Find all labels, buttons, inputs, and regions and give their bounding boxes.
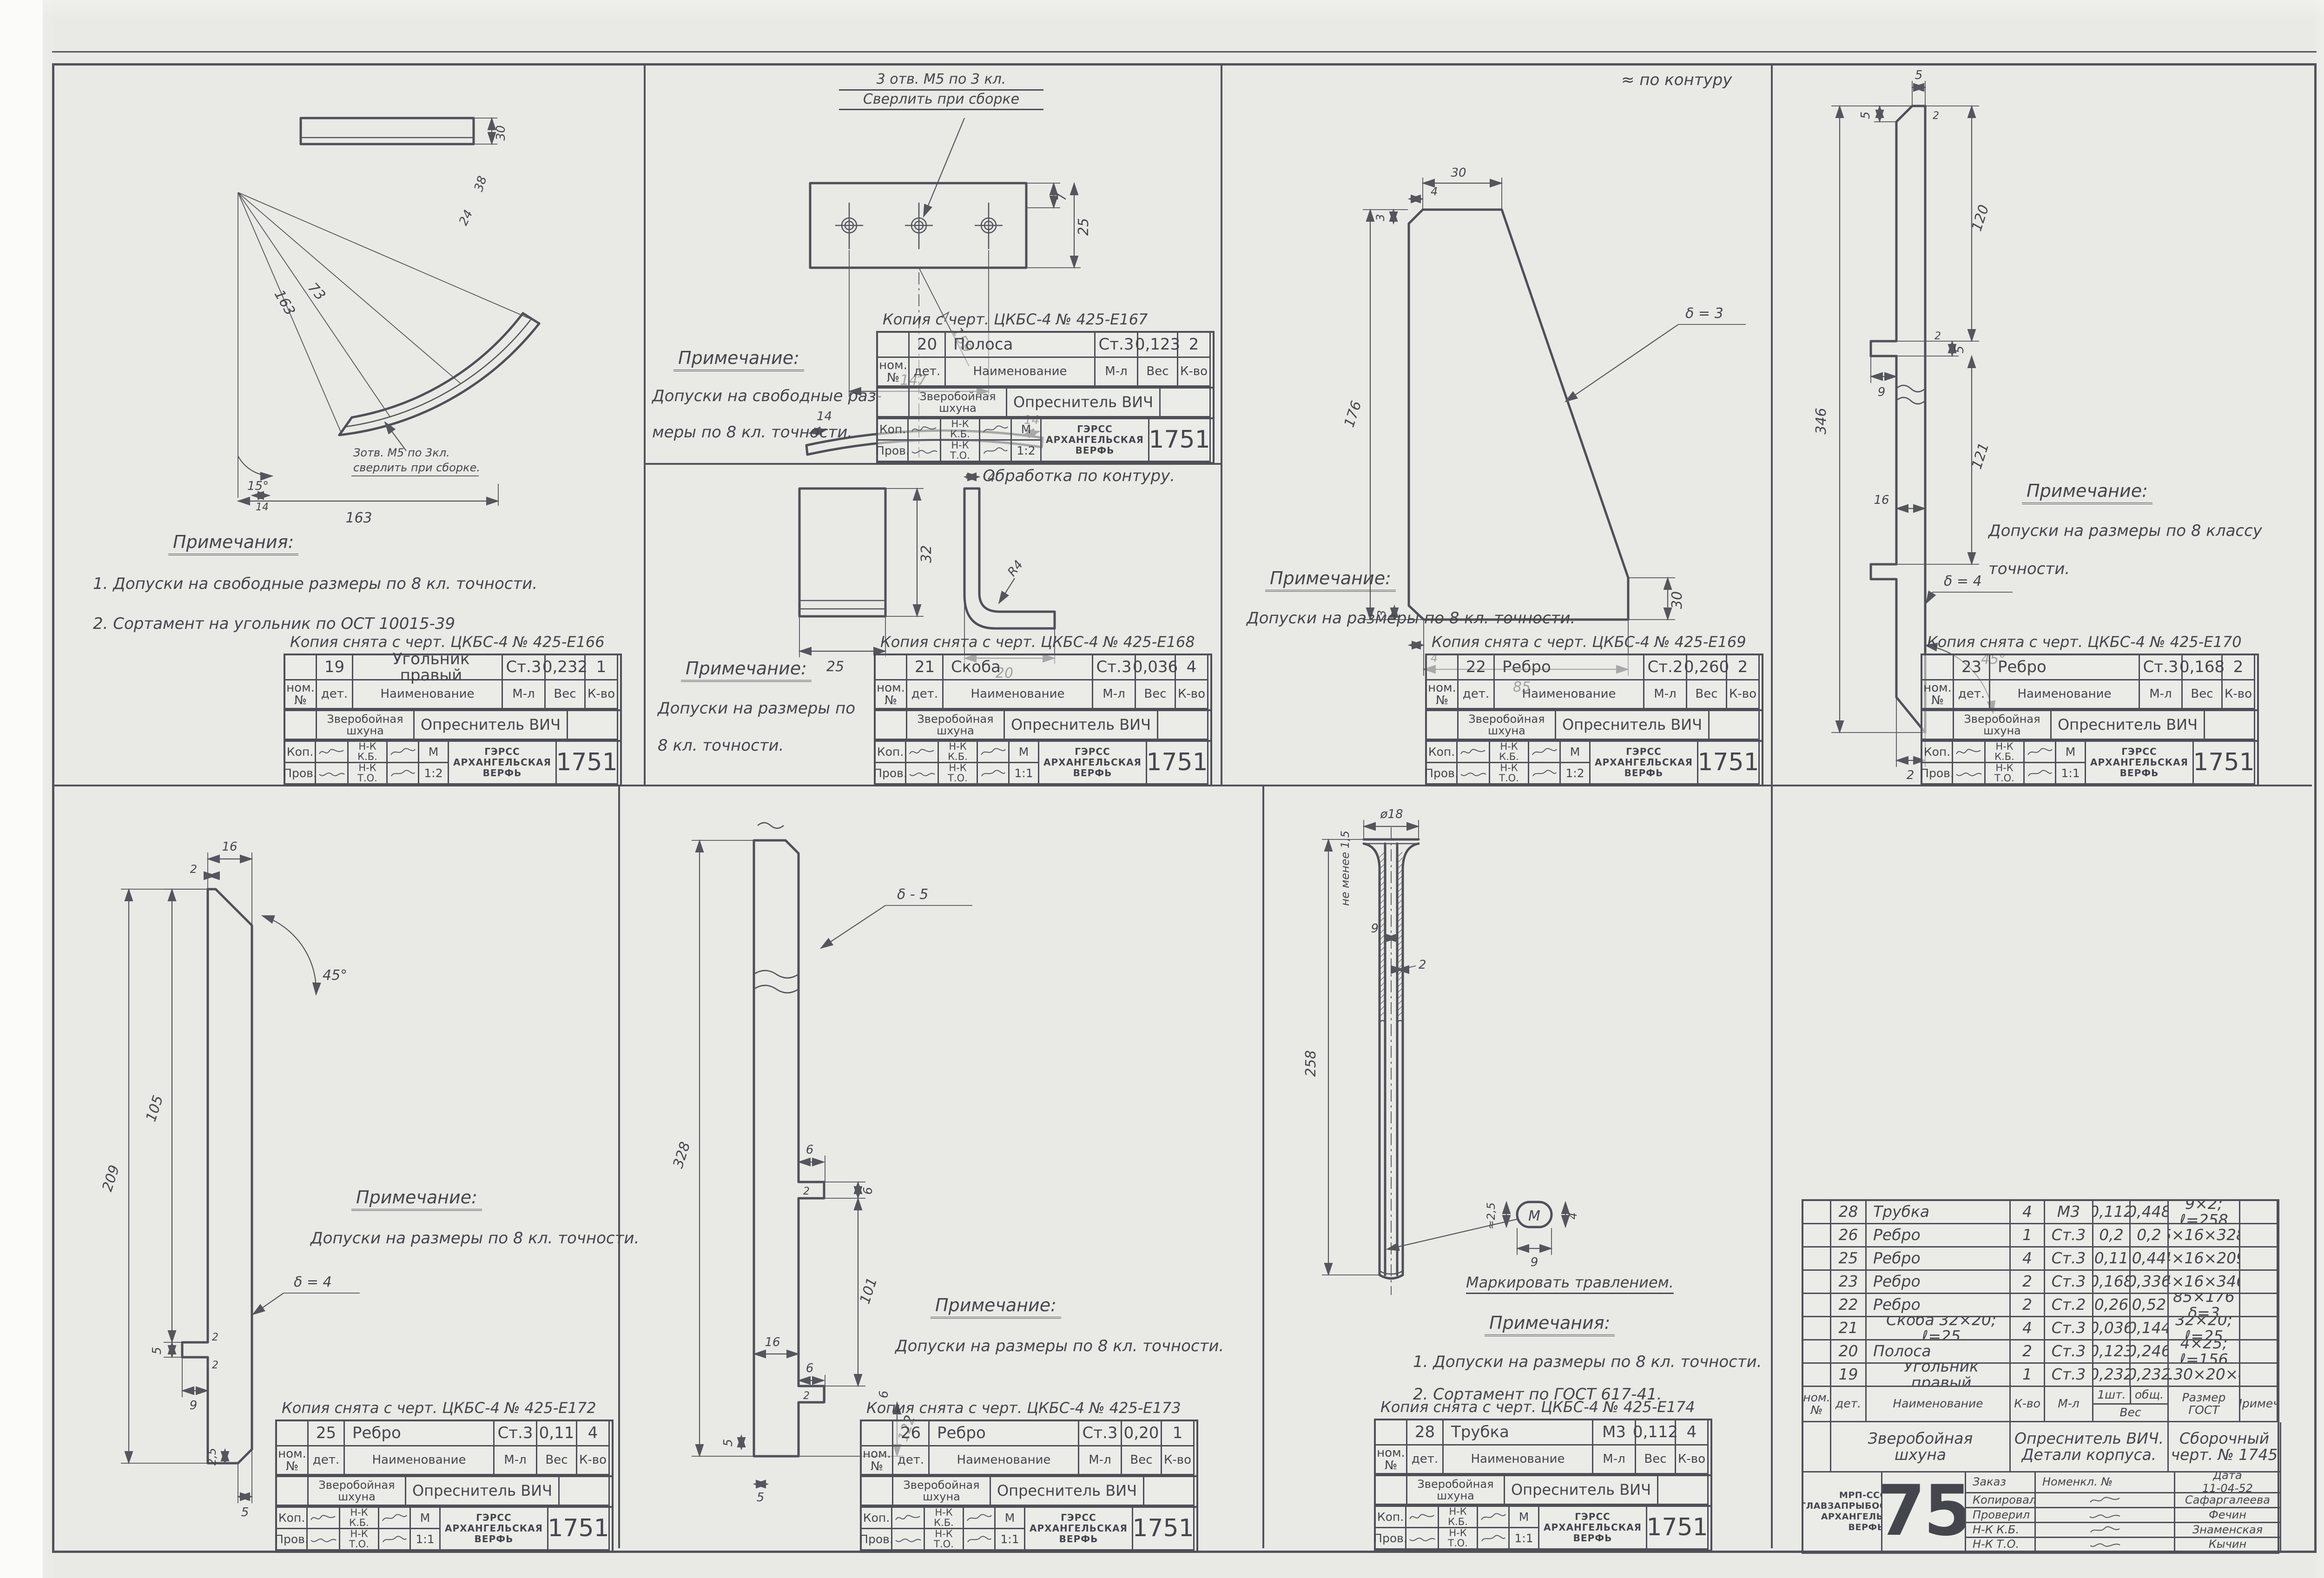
signature-scribble: [964, 1508, 996, 1529]
dim-label: 45°: [323, 967, 347, 984]
signature-scribble: [1953, 763, 1986, 785]
copy-line: Копия снята с черт. ЦКБС-4 № 425-Е173: [860, 1399, 1198, 1420]
panel-part-25: 16 2 45° 105 209 5 2 2 9 δ = 4 2,5: [52, 785, 618, 1551]
title-block-23: Копия снята с черт. ЦКБС-4 № 425-Е170 23…: [1921, 633, 2259, 786]
dim-label: 2: [212, 1360, 218, 1371]
signature-scribble: [978, 763, 1010, 785]
note-line: меры по 8 кл. точности.: [652, 423, 852, 442]
note-line: 1. Допуски на свободные размеры по 8 кл.…: [93, 574, 537, 593]
copy-line: Копия снята с черт. ЦКБС-4 № 425-Е168: [874, 633, 1212, 654]
dim-label: 176: [1341, 399, 1365, 429]
signature-scribble: [2036, 1538, 2175, 1552]
scale-value: 1:2: [1561, 763, 1591, 785]
note-title: Примечание:: [681, 658, 812, 682]
project-name: Зверобойная шхуна: [1831, 1422, 2011, 1472]
part-number: 19: [317, 655, 353, 680]
min-note: не менее 1,5: [1339, 831, 1352, 906]
part-qty: 1: [586, 655, 618, 680]
dim-label: 30: [1451, 166, 1466, 180]
dim-label: 5: [757, 1491, 765, 1505]
dim-label: 16: [765, 1335, 780, 1349]
scale-value: 1:1: [2056, 763, 2086, 785]
note-title: Примечание:: [1265, 568, 1396, 592]
dim-label: 2: [1933, 110, 1939, 122]
dim-label: 32: [918, 545, 935, 563]
panel-part-22: ≈ по контуру 30 4 3 176 δ = 3 30 85 4: [1221, 63, 1771, 785]
signature-scribble: [1458, 763, 1490, 785]
note-line: Допуски на размеры по 8 кл. точности.: [310, 1229, 639, 1248]
dim-label: 4: [988, 471, 996, 485]
drawing-number: 1751: [1647, 1507, 1709, 1550]
dim-label: 5: [150, 1347, 164, 1355]
signature-name: Фечин: [2175, 1508, 2281, 1523]
panel-part-19: 30 38 24 163 73 Зотв. М5 по 3кл. сверлит…: [52, 63, 644, 785]
dim-label: 24: [456, 208, 475, 228]
signature-scribble: [1953, 742, 1986, 763]
dim-label: ø18: [1380, 807, 1403, 821]
signature-scribble: [308, 1529, 340, 1551]
dim-label: 73: [304, 280, 329, 304]
dim-label: 9: [190, 1399, 198, 1413]
table-row: 20 Полоса2 Ст.30,123 0,2464×25; ℓ=156: [1802, 1340, 2279, 1364]
part-weight: 0,232: [546, 655, 586, 680]
drawing-number: 1751: [1133, 1508, 1195, 1551]
scale-value: 1:1: [1510, 1528, 1539, 1550]
title-block-19: Копия снята с черт. ЦКБС-4 № 425-Е166 19…: [284, 633, 622, 786]
signature-name: Кычин: [2175, 1538, 2281, 1552]
table-row: 22 Ребро2 Ст.20,26 0,5285×176 δ=3: [1802, 1294, 2279, 1317]
delta-label: δ - 5: [897, 886, 928, 903]
dim-label: 30: [1669, 591, 1685, 609]
dim-label: 16: [222, 840, 237, 854]
part-name: Ребро: [1990, 655, 2140, 680]
delta-label: δ = 4: [294, 1274, 332, 1290]
dim-label: 14: [256, 502, 269, 513]
panel-part-23: 5 5 2 120 346 9 5 2 121 16 δ = 4: [1771, 63, 2317, 785]
signature-scribble: [379, 1529, 411, 1551]
signature-scribble: [379, 1508, 411, 1529]
part-number: 26: [893, 1421, 930, 1446]
signature-scribble: [906, 763, 939, 785]
dim-label: 328: [670, 1140, 693, 1170]
drawing-number: 1751: [1698, 742, 1760, 785]
table-row: 26 Ребро1 Ст.30,2 0,25×16×328: [1802, 1224, 2279, 1248]
object-name: Опреснитель ВИЧ: [415, 711, 568, 740]
title-block-28: Копия снята с черт. ЦКБС-4 № 425-Е174 28…: [1374, 1398, 1712, 1552]
dim-label: 2,5: [205, 1448, 218, 1466]
dim-label: 16: [1874, 493, 1889, 507]
part-name: Угольник правый: [353, 655, 503, 680]
signature-scribble: [2036, 1508, 2175, 1523]
drill-note: 3 отв. М5 по 3 кл. Сверлить при сборке: [839, 71, 1043, 110]
dim-label: 38: [472, 174, 490, 193]
dim-label: 9: [1371, 922, 1379, 936]
signature-scribble: [316, 742, 349, 763]
drawing-number: 1751: [1149, 419, 1211, 462]
note-line: Допуски на размеры по 8 классу: [1988, 522, 2262, 540]
part-name: Ребро: [345, 1421, 495, 1446]
note-line: Допуски на размеры по 8 кл. точности.: [895, 1337, 1224, 1355]
table-row: 28 Трубка4 М30,112 0,4489×2; ℓ=258: [1802, 1199, 2279, 1224]
copy-line: Копия снята с черт. ЦКБС-4 № 425-Е169: [1425, 633, 1763, 654]
dim-label: 15°: [247, 479, 269, 493]
signature-scribble: [1406, 1507, 1439, 1528]
scale-value: 1:1: [411, 1529, 441, 1551]
dim-label: 120: [1968, 203, 1992, 233]
panel-part-26: δ - 5 6 2 6 16 101 6 2 6 122 328: [618, 785, 1262, 1551]
title-block-26: Копия снята с черт. ЦКБС-4 № 425-Е173 26…: [860, 1399, 1198, 1552]
part-number: 22: [1459, 655, 1495, 680]
note-line: 2. Сортамент на угольник по ОСТ 10015-39: [93, 614, 455, 633]
note-title: Примечание:: [2022, 481, 2152, 504]
object-name: Опреснитель ВИЧ. Детали корпуса.: [2011, 1422, 2169, 1472]
dim-label: 4: [1431, 185, 1438, 198]
dim-label: 6: [806, 1143, 814, 1157]
factory-name: ГЭРССАРХАНГЕЛЬСКАЯВЕРФЬ: [1039, 742, 1147, 785]
blueprint-sheet: 30 38 24 163 73 Зотв. М5 по 3кл. сверлит…: [0, 0, 2324, 1578]
dim-label: 121: [1968, 441, 1992, 471]
part-name: Ребро: [930, 1421, 1079, 1446]
factory-name: ГЭРССАРХАНГЕЛЬСКАЯВЕРФЬ: [2086, 742, 2194, 785]
dim-label: 5: [1915, 68, 1923, 82]
scale-value: 1:1: [1010, 763, 1039, 785]
date-cell: Дата11-04-52: [2175, 1472, 2281, 1493]
note-title: Примечания:: [168, 532, 298, 555]
table-row: 21 Скоба 32×20; ℓ=254 Ст.30,036 0,14432×…: [1802, 1317, 2279, 1340]
dim-label: 30: [494, 125, 508, 140]
scale-value: 1:2: [419, 763, 449, 785]
part-number: 28: [1407, 1420, 1444, 1446]
signature-scribble: [2036, 1523, 2175, 1538]
signature-scribble: [316, 763, 349, 785]
drawing-number: 1751: [2194, 742, 2255, 785]
signature-scribble: [892, 1529, 925, 1551]
scale-value: 1:2: [1012, 441, 1042, 462]
dim-label: 163: [345, 510, 372, 526]
title-block-21: Копия снята с черт. ЦКБС-4 № 425-Е168 21…: [874, 633, 1212, 786]
title-block-20: Копия с черт. ЦКБС-4 № 425-Е167 20 Полос…: [876, 310, 1215, 464]
signature-scribble: [964, 1529, 996, 1551]
dim-label: 2: [803, 1390, 810, 1402]
copy-line: Копия снята с черт. ЦКБС-4 № 425-Е174: [1374, 1398, 1712, 1419]
table-row: 25 Ребро4 Ст.30,11 0,444×16×209: [1802, 1248, 2279, 1271]
drawing-number: 1751: [557, 742, 618, 785]
signature-scribble: [1529, 742, 1561, 763]
shipyard-logo: ⚓ МРП-СССР ГЛАВЗАПРЫБОСУДОСТР. АРХАНГЕЛЬ…: [1803, 1472, 1882, 1552]
panel-part-28: не менее 1,5 ø18 9 2 258 М ≈2,5 4 9 Марк…: [1262, 785, 1771, 1551]
main-title-row: Зверобойная шхуна Опреснитель ВИЧ. Детал…: [1802, 1422, 2279, 1472]
note-line: Допуски на размеры по 8 кл. точности.: [1247, 609, 1575, 627]
note-title: Примечание:: [673, 348, 804, 371]
part-material: Ст.3: [503, 655, 546, 680]
dim-label: 101: [857, 1275, 880, 1306]
note-line: 8 кл. точности.: [658, 736, 784, 755]
dim-label: 2: [190, 863, 197, 876]
drawing-number: 1751: [548, 1508, 610, 1551]
signature-scribble: [388, 763, 419, 785]
note-title: Примечания:: [1485, 1313, 1615, 1336]
signature-scribble: [2025, 742, 2056, 763]
drawing-number: 1751: [1147, 742, 1208, 785]
signature-scribble: [978, 742, 1010, 763]
dim-label: 9: [1878, 385, 1886, 399]
copy-line: Копия с черт. ЦКБС-4 № 425-Е167: [876, 310, 1215, 331]
signature-scribble: [909, 441, 941, 462]
factory-name: ГЭРССАРХАНГЕЛЬСКАЯВЕРФЬ: [1591, 742, 1698, 785]
dim-label: 5: [1859, 112, 1873, 119]
part-number: 20: [910, 333, 946, 358]
hole-note-line2: сверлить при сборке.: [353, 461, 480, 474]
signature-scribble: [909, 419, 941, 441]
dim-label: 2: [1907, 768, 1915, 782]
signature-scribble: [2036, 1493, 2175, 1508]
dim-label: 2: [1934, 330, 1941, 342]
note-line: Допуски на размеры по: [658, 699, 855, 718]
part-number: 25: [309, 1421, 345, 1446]
etch-note: Маркировать травлением.: [1466, 1274, 1674, 1294]
delta-label: δ = 3: [1685, 305, 1723, 322]
assembly-drawing-ref: Сборочный черт. № 1745: [2169, 1422, 2281, 1472]
factory-name: ГЭРССАРХАНГЕЛЬСКАЯВЕРФЬ: [441, 1508, 548, 1551]
dim-label: 258: [1303, 1050, 1319, 1076]
dim-label: 14: [817, 409, 832, 423]
signature-scribble: [1478, 1507, 1510, 1528]
main-bottom-block: Заказ Номенкл. № Дата11-04-52 ⚓ МРП-СССР…: [1802, 1472, 2279, 1554]
note-line: Допуски на свободные раз-: [652, 387, 882, 405]
note-title: Примечание:: [351, 1187, 482, 1211]
signature-scribble: [906, 742, 939, 763]
signature-scribble: [980, 419, 1012, 441]
dim-label: 25: [826, 659, 844, 675]
note-line: точности.: [1988, 560, 2070, 578]
parts-list: 28 Трубка4 М30,112 0,4489×2; ℓ=258 26 Ре…: [1802, 1199, 2279, 1554]
copy-line: Копия снята с черт. ЦКБС-4 № 425-Е170: [1921, 633, 2259, 654]
signature-scribble: [1529, 763, 1561, 785]
note-line: 1. Допуски на размеры по 8 кл. точности.: [1413, 1353, 1762, 1371]
part-name: Полоса: [946, 333, 1096, 358]
dim-label: 6: [877, 1391, 891, 1399]
drawing-number-stamp: 1751: [1882, 1472, 1966, 1552]
dim-label: 5: [1953, 346, 1967, 354]
signature-scribble: [1458, 742, 1490, 763]
table-row: 23 Ребро2 Ст.30,168 0,3364×16×346: [1802, 1271, 2279, 1294]
factory-name: ГЭРССАРХАНГЕЛЬСКАЯВЕРФЬ: [449, 742, 557, 785]
scan-edge-left: [0, 0, 43, 1578]
dim-label: 163: [271, 287, 298, 318]
title-block-22: Копия снята с черт. ЦКБС-4 № 425-Е169 22…: [1425, 633, 1763, 786]
title-block-25: Копия снята с черт. ЦКБС-4 № 425-Е172 25…: [275, 1399, 614, 1552]
signature-scribble: [308, 1508, 340, 1529]
frame-top-hairline: [52, 51, 2317, 53]
dim-label: 2: [212, 1332, 218, 1343]
dim-label: 9: [1531, 1255, 1538, 1269]
part-number: 21: [907, 655, 944, 680]
dim-label: 346: [1813, 408, 1829, 434]
signature-scribble: [980, 441, 1012, 462]
signature-scribble: [892, 1508, 925, 1529]
dim-label: 209: [99, 1163, 123, 1193]
dim-label: 6: [806, 1361, 814, 1375]
signature-name: Сафаргалеева: [2175, 1493, 2281, 1508]
signature-name: Знаменская: [2175, 1523, 2281, 1538]
part-name: Ребро: [1495, 655, 1644, 680]
signature-scribble: [1478, 1528, 1510, 1550]
table-row: 19 Угольник правый1 Ст.30,232 0,232∠30×2…: [1802, 1364, 2279, 1387]
dim-label: 3: [1374, 214, 1387, 221]
part-name: Скоба: [944, 655, 1093, 680]
table-header: ном. № дет. Наименование К-во М-л 1шт.об…: [1802, 1387, 2279, 1422]
signature-scribble: [388, 742, 419, 763]
dim-label: 2: [803, 1186, 810, 1197]
mark-letter: М: [1528, 1208, 1540, 1224]
hole-note-line1: Зотв. М5 по 3кл.: [353, 446, 450, 459]
copy-line: Копия снята с черт. ЦКБС-4 № 425-Е172: [275, 1399, 614, 1420]
factory-name: ГЭРССАРХАНГЕЛЬСКАЯВЕРФЬ: [1025, 1508, 1133, 1551]
dim-label: 105: [143, 1093, 166, 1123]
factory-name: ГЭРССАРХАНГЕЛЬСКАЯВЕРФЬ: [1042, 419, 1149, 462]
panel-part-21: ≈ Обработка по контуру. 32 25 4 R4 20 Пр…: [644, 463, 1221, 785]
part-name: Трубка: [1444, 1420, 1593, 1446]
dim-label: 2: [1419, 958, 1426, 972]
dim-label: 25: [1076, 218, 1092, 236]
factory-name: ГЭРССАРХАНГЕЛЬСКАЯВЕРФЬ: [1539, 1507, 1647, 1550]
dim-label: 5: [241, 1505, 249, 1519]
part-number: 23: [1954, 655, 1990, 680]
project-name: Зверобойная шхуна: [317, 711, 415, 740]
signature-scribble: [2025, 763, 2056, 785]
delta-label: δ = 4: [1944, 573, 1982, 589]
dim-label: 5: [721, 1439, 735, 1447]
note-title: Примечание:: [931, 1295, 1061, 1319]
signature-scribble: [1406, 1528, 1439, 1550]
dim-label: 7: [1055, 193, 1069, 201]
panel-parts-list: 28 Трубка4 М30,112 0,4489×2; ℓ=258 26 Ре…: [1771, 785, 2317, 1551]
scale-value: 1:1: [996, 1529, 1025, 1551]
dim-label: 6: [861, 1187, 875, 1195]
panel-part-20: 7 25 159 147 14 14 3 отв. М5 по 3 кл. Св…: [644, 63, 1221, 463]
dim-label: 4: [1566, 1212, 1579, 1219]
dim-label: R4: [1005, 558, 1026, 579]
